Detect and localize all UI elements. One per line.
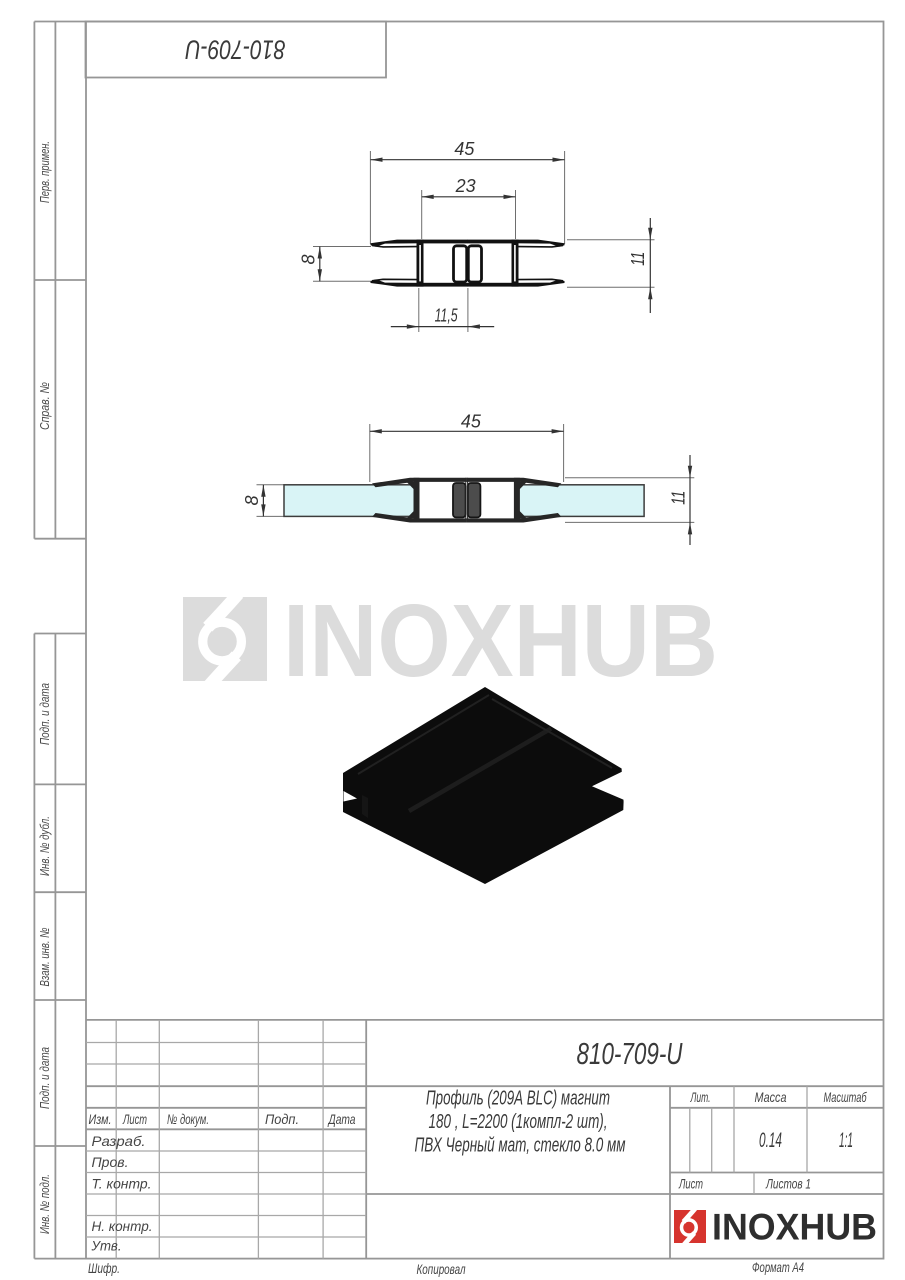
svg-text:№ докум.: № докум. <box>167 1111 209 1127</box>
svg-text:Профиль (209А BLC) магнит: Профиль (209А BLC) магнит <box>426 1088 610 1110</box>
svg-text:Формат А4: Формат А4 <box>752 1259 804 1275</box>
svg-text:Шифр.: Шифр. <box>88 1260 120 1276</box>
svg-text:45: 45 <box>461 412 482 432</box>
svg-text:Лист: Лист <box>678 1176 703 1192</box>
svg-text:Подп.: Подп. <box>265 1111 299 1127</box>
svg-text:Справ. №: Справ. № <box>37 382 52 430</box>
svg-text:Копировал: Копировал <box>417 1261 466 1277</box>
svg-text:Подп. и дата: Подп. и дата <box>37 1047 52 1109</box>
svg-text:Инв. № дубл.: Инв. № дубл. <box>37 816 52 876</box>
svg-text:8: 8 <box>242 495 262 505</box>
svg-text:810-709-U: 810-709-U <box>185 35 285 65</box>
svg-text:Т. контр.: Т. контр. <box>92 1176 152 1192</box>
svg-text:INOXHUB: INOXHUB <box>712 1207 877 1248</box>
svg-text:Подп. и дата: Подп. и дата <box>37 683 52 745</box>
svg-text:Дата: Дата <box>327 1111 356 1127</box>
svg-text:Лит.: Лит. <box>690 1089 711 1105</box>
svg-text:Листов 1: Листов 1 <box>765 1176 811 1192</box>
svg-text:ПВХ Черный мат, стекло 8.0 мм: ПВХ Черный мат, стекло 8.0 мм <box>415 1135 626 1157</box>
svg-text:0.14: 0.14 <box>759 1129 782 1152</box>
svg-text:11: 11 <box>628 252 648 266</box>
svg-text:Н. контр.: Н. контр. <box>92 1218 153 1234</box>
svg-text:180 , L=2200 (1компл-2 шт),: 180 , L=2200 (1компл-2 шт), <box>429 1111 608 1133</box>
svg-text:INOXHUB: INOXHUB <box>283 583 718 698</box>
svg-text:11: 11 <box>668 491 688 505</box>
svg-text:Лист: Лист <box>122 1111 147 1127</box>
svg-text:1:1: 1:1 <box>839 1129 853 1152</box>
svg-text:23: 23 <box>455 176 476 196</box>
svg-text:Инв. № подл.: Инв. № подл. <box>37 1174 52 1234</box>
svg-text:Утв.: Утв. <box>91 1238 122 1254</box>
svg-text:Пров.: Пров. <box>92 1154 129 1170</box>
svg-text:Взам. инв. №: Взам. инв. № <box>37 928 52 987</box>
svg-text:Разраб.: Разраб. <box>92 1133 146 1149</box>
svg-text:8: 8 <box>298 254 318 264</box>
svg-text:810-709-U: 810-709-U <box>577 1036 683 1071</box>
svg-text:Изм.: Изм. <box>89 1111 112 1127</box>
svg-text:Перв. примен.: Перв. примен. <box>37 141 52 203</box>
svg-text:11,5: 11,5 <box>435 306 459 326</box>
svg-text:Масштаб: Масштаб <box>824 1089 868 1105</box>
svg-text:Масса: Масса <box>755 1089 787 1105</box>
svg-text:45: 45 <box>454 139 475 159</box>
